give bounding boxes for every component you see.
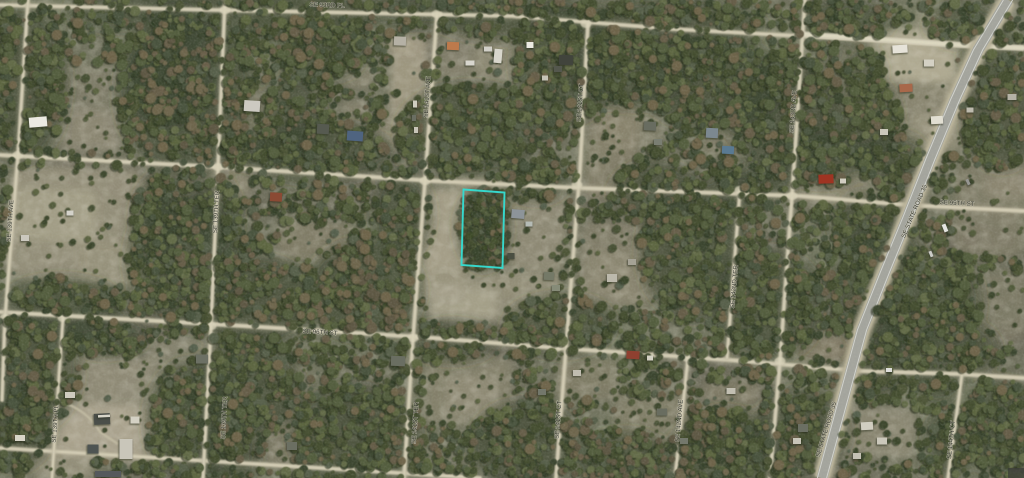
svg-text:SE 93RD PL: SE 93RD PL <box>309 1 345 9</box>
